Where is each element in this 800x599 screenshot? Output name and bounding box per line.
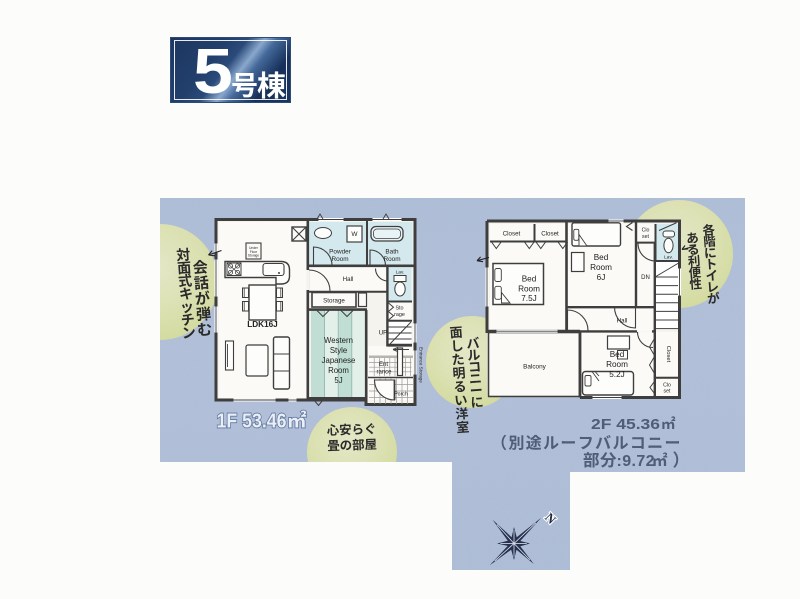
svg-text:N: N (542, 510, 560, 528)
svg-text:Storage: Storage (248, 254, 259, 258)
svg-text:set: set (664, 389, 671, 395)
svg-text:Closet: Closet (665, 346, 671, 363)
svg-text:Porch: Porch (394, 392, 408, 398)
svg-text:Room: Room (331, 256, 348, 263)
svg-text:Entrance Storage: Entrance Storage (419, 347, 424, 383)
svg-text:Room: Room (383, 256, 400, 263)
svg-text:rance: rance (376, 370, 392, 376)
svg-text:Bath: Bath (385, 249, 399, 256)
svg-text:Balcony: Balcony (523, 364, 547, 371)
svg-text:Closet: Closet (541, 231, 559, 238)
svg-text:Room: Room (590, 263, 612, 272)
svg-text:Storage: Storage (323, 298, 345, 305)
svg-text:5J: 5J (334, 376, 342, 385)
svg-text:7.5J: 7.5J (521, 294, 536, 303)
svg-text:W: W (351, 231, 358, 238)
svg-text:Bed: Bed (522, 275, 537, 284)
svg-text:Lav.: Lav. (664, 255, 673, 261)
svg-text:Closet: Closet (503, 231, 521, 238)
svg-text:Hall: Hall (343, 276, 354, 283)
svg-text:5.2J: 5.2J (609, 370, 624, 379)
svg-text:Lav.: Lav. (396, 270, 404, 275)
svg-text:6J: 6J (597, 273, 606, 282)
svg-text:Japanese: Japanese (322, 356, 356, 365)
svg-text:Room: Room (606, 360, 628, 369)
svg-text:2F 45.36: 2F 45.36 (591, 416, 660, 433)
svg-text:Bed: Bed (610, 350, 625, 359)
svg-text:Sto: Sto (395, 306, 403, 312)
svg-text:Style: Style (330, 346, 347, 355)
svg-text:rage: rage (394, 312, 405, 318)
svg-text:Powder: Powder (329, 249, 352, 256)
svg-text:Hall: Hall (617, 318, 628, 325)
svg-text:LDK16J: LDK16J (247, 320, 278, 329)
svg-text:1F 53.46: 1F 53.46 (217, 410, 287, 433)
svg-text:Western: Western (324, 336, 353, 345)
svg-text:Bed: Bed (594, 253, 609, 262)
svg-text:Ent: Ent (379, 362, 388, 368)
svg-text:Clo: Clo (642, 228, 650, 234)
svg-text:Room: Room (518, 285, 540, 294)
svg-text:set: set (642, 234, 649, 240)
svg-text:DN: DN (641, 275, 650, 281)
svg-text:UP: UP (379, 330, 388, 337)
svg-text:Room: Room (328, 366, 349, 375)
svg-text::9.72: :9.72 (617, 453, 655, 470)
